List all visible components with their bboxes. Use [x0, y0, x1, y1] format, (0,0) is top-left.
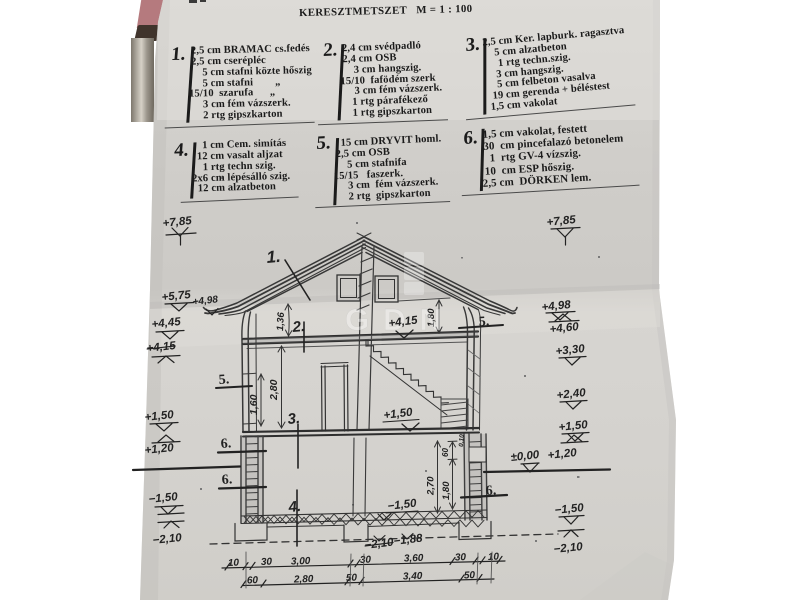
svg-text:6.: 6. — [221, 472, 233, 488]
svg-text:−2,10: −2,10 — [553, 541, 584, 556]
svg-text:1,60: 1,60 — [248, 394, 260, 415]
svg-text:1,80: 1,80 — [441, 481, 452, 500]
svg-text:5.: 5. — [478, 314, 490, 330]
svg-text:+4,45: +4,45 — [151, 316, 182, 331]
svg-text:±0,00: ±0,00 — [510, 449, 540, 464]
svg-text:+2,40: +2,40 — [556, 387, 587, 402]
svg-text:+4,60: +4,60 — [549, 321, 580, 336]
svg-text:2,80: 2,80 — [293, 574, 314, 586]
svg-text:+1,50: +1,50 — [558, 419, 589, 434]
svg-text:50: 50 — [346, 573, 358, 584]
svg-text:0,10: 0,10 — [458, 434, 466, 447]
svg-text:−1,50: −1,50 — [554, 502, 585, 517]
svg-text:−2,10: −2,10 — [364, 536, 395, 552]
svg-text:−1,88: −1,88 — [393, 532, 424, 548]
svg-text:30: 30 — [360, 555, 372, 566]
svg-text:4.: 4. — [287, 498, 302, 516]
svg-text:+1,20: +1,20 — [547, 447, 578, 462]
svg-text:1,36: 1,36 — [275, 311, 287, 331]
svg-text:2,70: 2,70 — [426, 476, 437, 496]
svg-text:+1,20: +1,20 — [144, 442, 175, 457]
svg-text:+4,15: +4,15 — [146, 340, 177, 355]
svg-text:10: 10 — [488, 552, 500, 563]
svg-text:−1,50: −1,50 — [387, 497, 418, 513]
svg-text:−1,50: −1,50 — [148, 491, 179, 506]
svg-text:2,80: 2,80 — [268, 379, 280, 401]
svg-text:30: 30 — [261, 557, 273, 568]
svg-text:3,00: 3,00 — [291, 556, 311, 568]
svg-text:3,60: 3,60 — [404, 553, 424, 565]
svg-text:+1,50: +1,50 — [144, 409, 175, 424]
svg-text:+5,75: +5,75 — [161, 289, 192, 304]
svg-text:5.: 5. — [218, 372, 230, 388]
svg-text:−2,10: −2,10 — [152, 532, 183, 547]
svg-text:+4,98: +4,98 — [192, 294, 219, 308]
svg-text:+7,85: +7,85 — [546, 214, 577, 229]
svg-text:3,40: 3,40 — [403, 571, 423, 583]
svg-text:+3,30: +3,30 — [555, 343, 586, 358]
svg-text:6.: 6. — [220, 436, 232, 452]
svg-text:10: 10 — [228, 558, 240, 569]
svg-text:30: 30 — [455, 552, 467, 563]
svg-text:1.: 1. — [266, 247, 282, 267]
svg-text:50: 50 — [464, 570, 476, 581]
svg-text:60: 60 — [247, 575, 259, 586]
svg-text:60: 60 — [441, 448, 450, 457]
